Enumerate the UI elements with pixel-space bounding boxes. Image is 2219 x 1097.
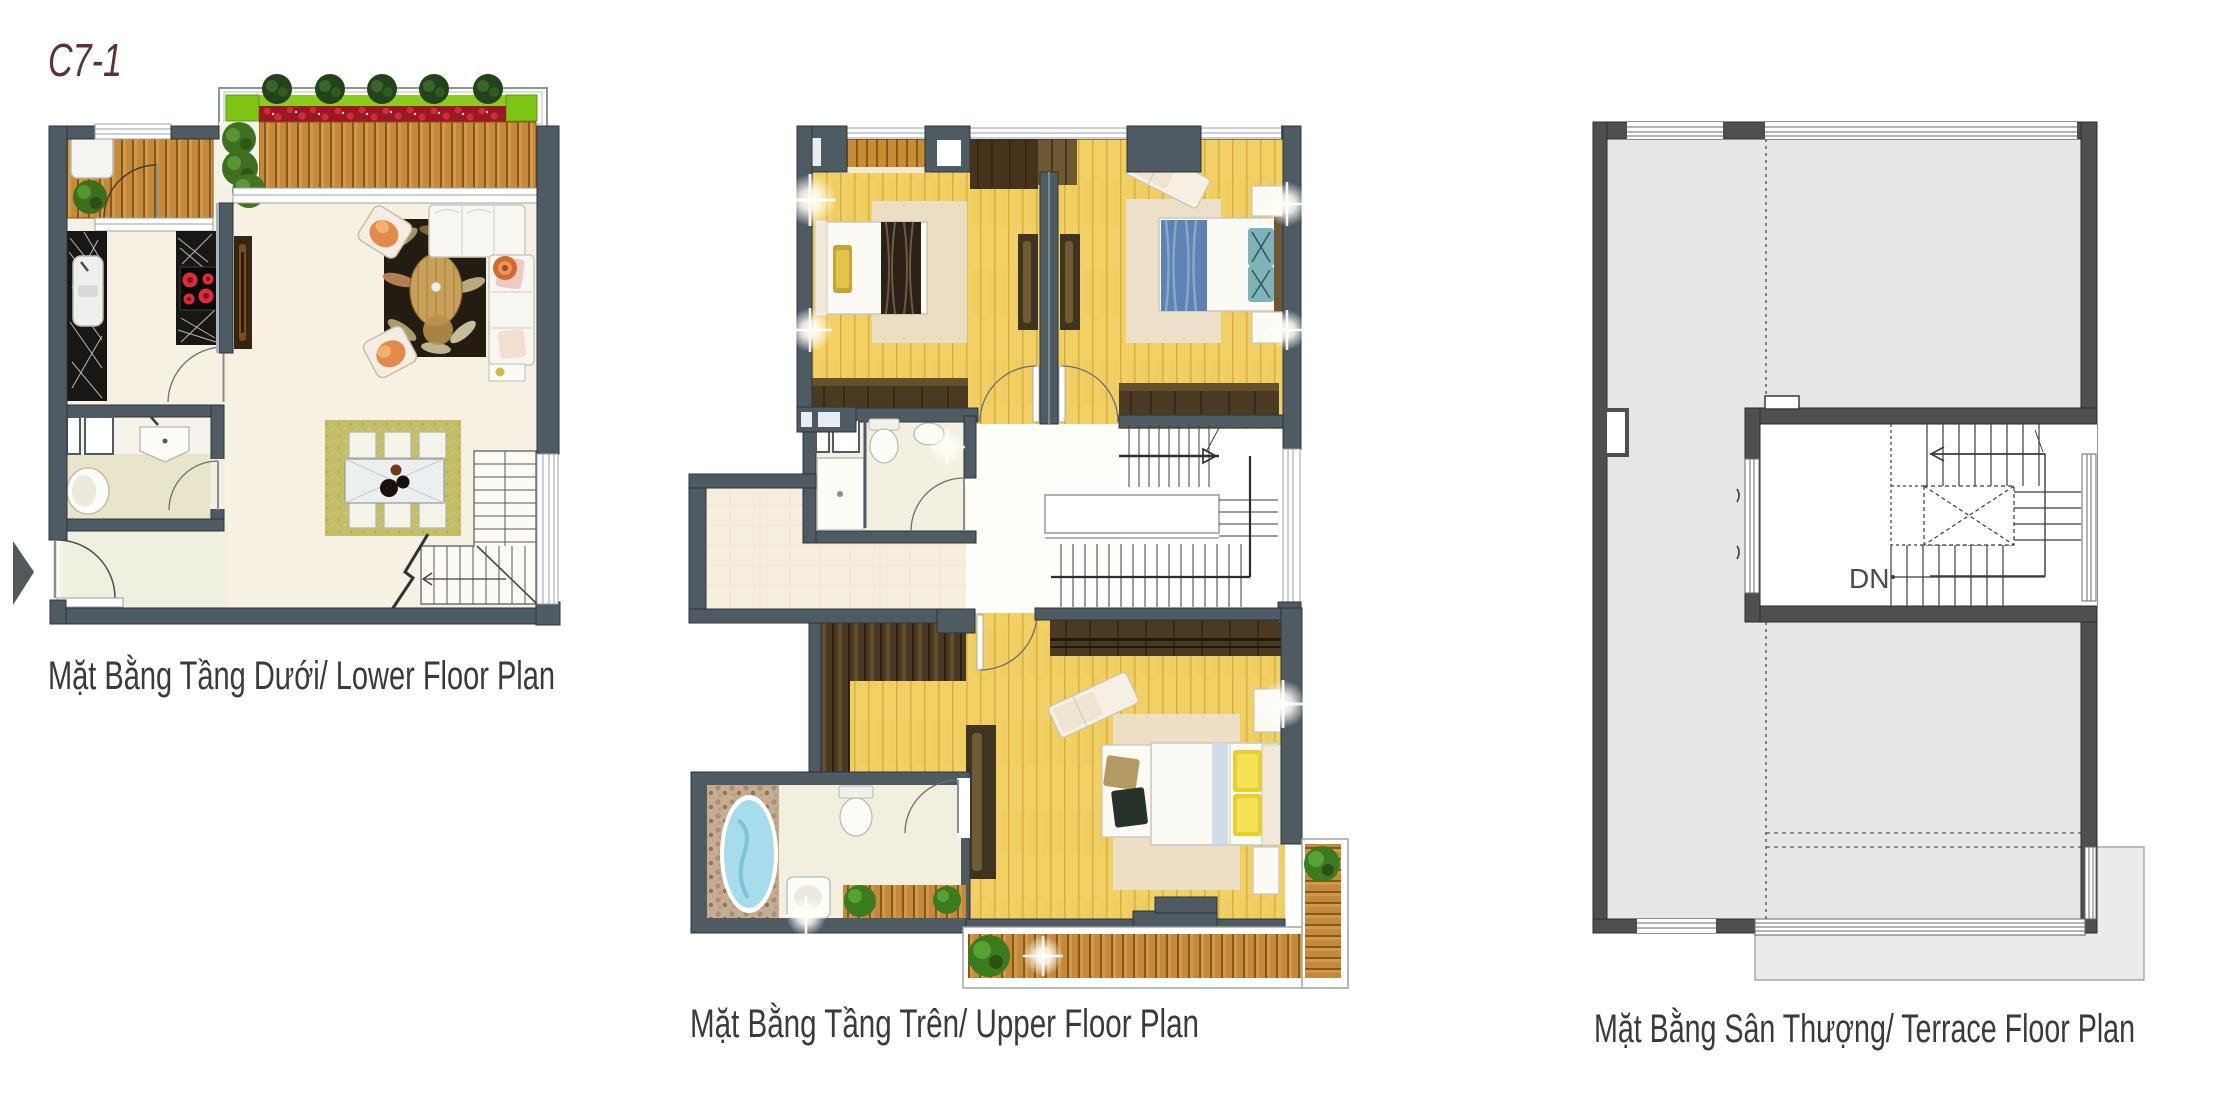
- svg-text:Mặt Bằng Tầng Trên/ Upper Floo: Mặt Bằng Tầng Trên/ Upper Floor Plan: [690, 1001, 1199, 1046]
- svg-text:C7-1: C7-1: [48, 34, 122, 86]
- svg-text:Mặt Bằng Sân Thượng/ Terrace F: Mặt Bằng Sân Thượng/ Terrace Floor Plan: [1594, 1006, 2135, 1051]
- svg-text:DN: DN: [1849, 563, 1889, 594]
- svg-text:Mặt Bằng Tầng Dưới/ Lower Floo: Mặt Bằng Tầng Dưới/ Lower Floor Plan: [48, 653, 555, 698]
